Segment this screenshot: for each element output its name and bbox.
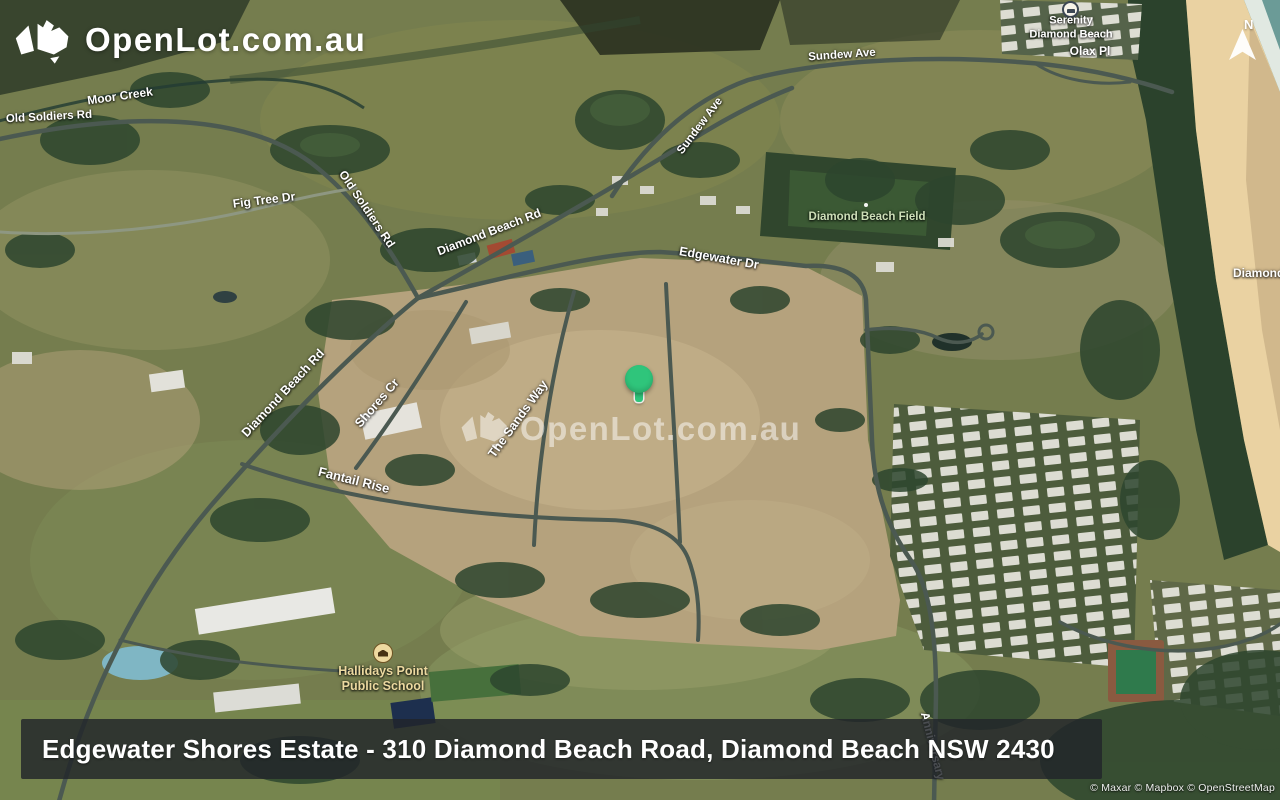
- poi-label-hallidays-point-public-school: Hallidays Point Public School: [338, 664, 428, 695]
- australia-icon: [460, 408, 510, 450]
- watermark: OpenLot.com.au: [460, 408, 801, 450]
- map-attribution[interactable]: © Maxar © Mapbox © OpenStreetMap: [1090, 782, 1275, 794]
- property-marker[interactable]: [625, 365, 653, 393]
- school-icon: [373, 643, 393, 663]
- school-label-line2: Public School: [338, 679, 428, 694]
- property-address-text: Edgewater Shores Estate - 310 Diamond Be…: [42, 734, 1055, 765]
- school-label-line1: Hallidays Point: [338, 664, 428, 679]
- compass-control[interactable]: N: [1229, 17, 1263, 63]
- watermark-text: OpenLot.com.au: [520, 410, 801, 448]
- park-dot-icon: [864, 203, 868, 207]
- locality-label-diamond-beach: Diamond: [1233, 266, 1280, 280]
- map-canvas[interactable]: Moor Creek Old Soldiers Rd Fig Tree Dr O…: [0, 0, 1280, 800]
- road-label-olax-pl: Olax Pl: [1070, 44, 1111, 58]
- logo-text: OpenLot.com.au: [85, 21, 366, 59]
- poi-label-line2: Diamond Beach: [1029, 28, 1112, 42]
- poi-label-serenity-diamond-beach: Serenity Diamond Beach: [1029, 14, 1112, 42]
- australia-icon: [14, 16, 72, 64]
- property-address-banner: Edgewater Shores Estate - 310 Diamond Be…: [21, 719, 1102, 779]
- park-label-diamond-beach-field: Diamond Beach Field: [809, 211, 926, 223]
- openlot-logo: OpenLot.com.au: [14, 16, 366, 64]
- poi-label-line1: Serenity: [1029, 14, 1112, 28]
- north-arrow-icon: [1229, 29, 1256, 60]
